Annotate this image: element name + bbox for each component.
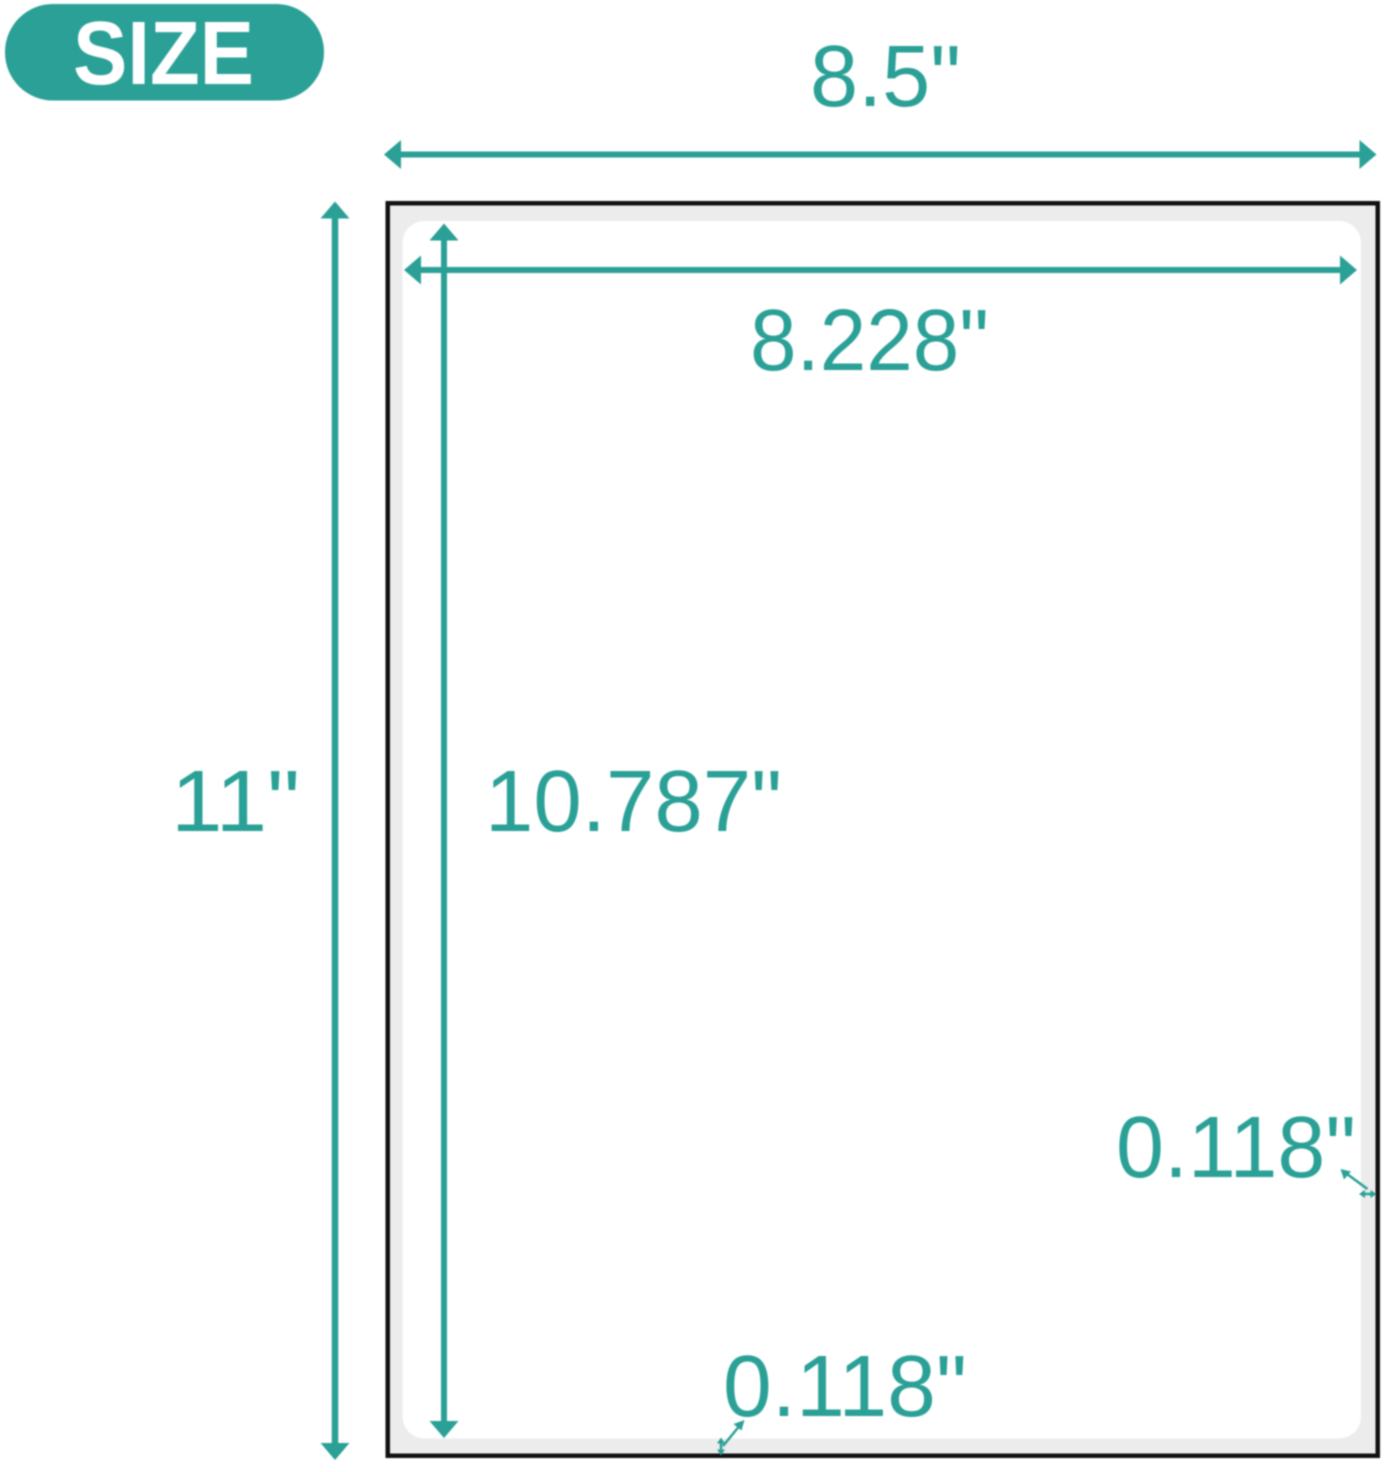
svg-text:8.228": 8.228" <box>750 292 989 389</box>
svg-text:0.118": 0.118" <box>1116 1099 1356 1196</box>
svg-text:0.118": 0.118" <box>723 1338 967 1435</box>
svg-text:SIZE: SIZE <box>73 4 254 104</box>
svg-text:10.787": 10.787" <box>485 753 782 850</box>
svg-text:8.5": 8.5" <box>810 28 961 125</box>
svg-text:11": 11" <box>171 753 300 850</box>
